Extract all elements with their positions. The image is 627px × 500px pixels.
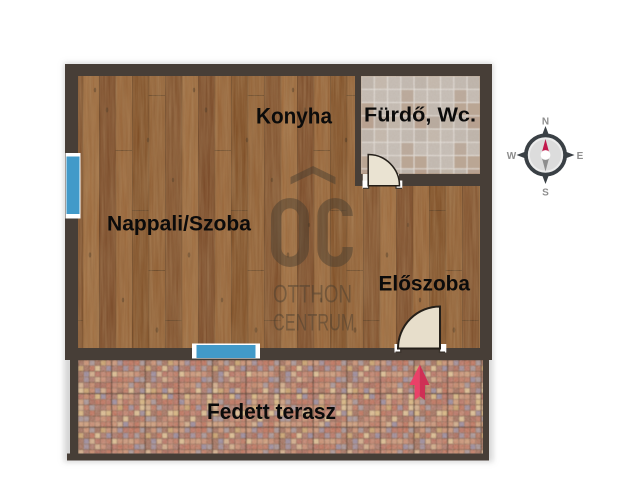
svg-text:OTTHON: OTTHON (273, 281, 352, 309)
svg-text:N: N (542, 117, 549, 128)
svg-text:W: W (507, 151, 517, 162)
svg-text:S: S (542, 188, 549, 199)
svg-text:Konyha: Konyha (256, 104, 333, 129)
svg-text:Fürdő, Wc.: Fürdő, Wc. (364, 104, 476, 127)
svg-text:CENTRUM: CENTRUM (273, 310, 355, 337)
svg-text:Nappali/Szoba: Nappali/Szoba (107, 212, 252, 236)
svg-text:Fedett terasz: Fedett terasz (207, 399, 336, 424)
svg-text:E: E (577, 151, 584, 162)
svg-text:Előszoba: Előszoba (379, 273, 471, 296)
